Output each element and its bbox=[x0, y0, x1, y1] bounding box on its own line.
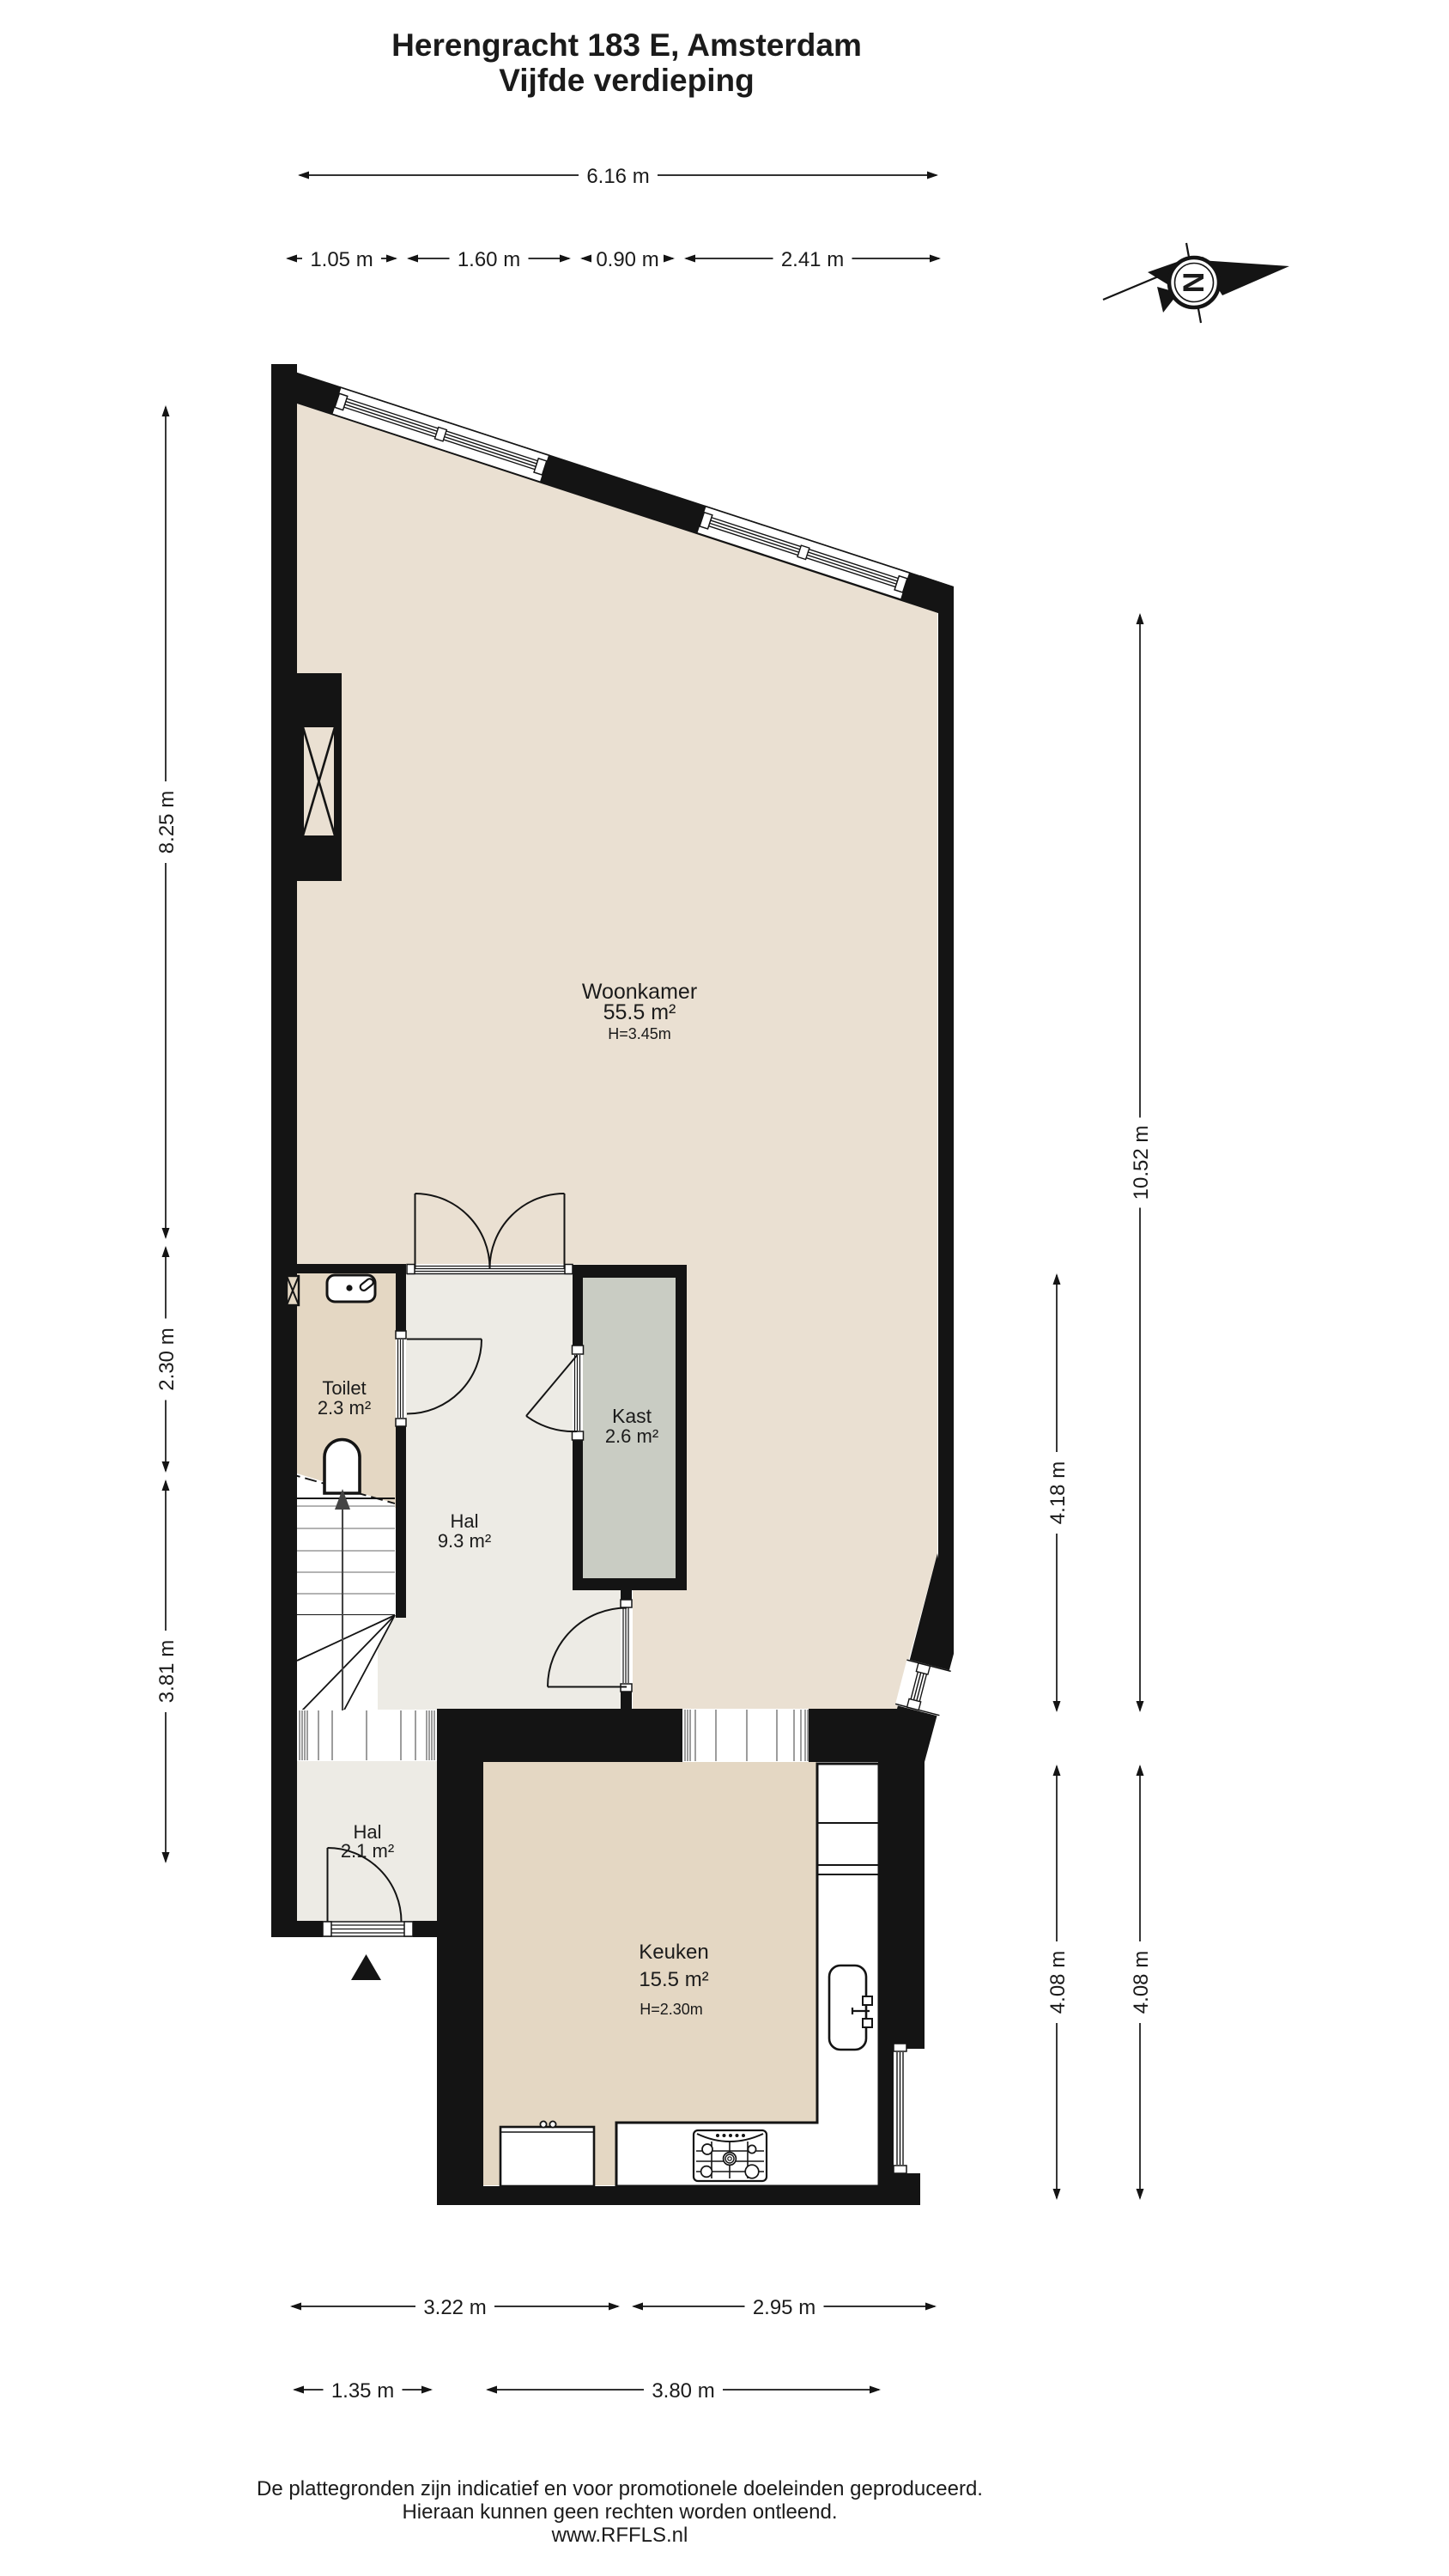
svg-text:15.5 m²: 15.5 m² bbox=[639, 1968, 708, 1991]
svg-text:9.3 m²: 9.3 m² bbox=[438, 1530, 491, 1552]
svg-text:H=3.45m: H=3.45m bbox=[608, 1025, 671, 1042]
svg-text:2.95 m: 2.95 m bbox=[753, 2296, 815, 2319]
svg-text:N: N bbox=[1177, 272, 1210, 294]
svg-text:Keuken: Keuken bbox=[639, 1941, 708, 1964]
svg-text:2.41 m: 2.41 m bbox=[781, 248, 844, 271]
svg-text:De plattegronden zijn indicati: De plattegronden zijn indicatief en voor… bbox=[257, 2477, 983, 2500]
svg-text:0.90 m: 0.90 m bbox=[596, 248, 658, 271]
svg-text:2.30 m: 2.30 m bbox=[155, 1327, 179, 1390]
svg-text:55.5 m²: 55.5 m² bbox=[603, 1000, 676, 1024]
svg-text:Hal: Hal bbox=[450, 1510, 478, 1532]
svg-text:Herengracht 183 E, Amsterdam: Herengracht 183 E, Amsterdam bbox=[391, 27, 862, 63]
svg-text:4.08 m: 4.08 m bbox=[1046, 1951, 1070, 2014]
svg-text:2.3 m²: 2.3 m² bbox=[318, 1397, 371, 1419]
svg-text:1.60 m: 1.60 m bbox=[458, 248, 520, 271]
svg-text:3.81 m: 3.81 m bbox=[155, 1640, 179, 1703]
svg-text:8.25 m: 8.25 m bbox=[155, 791, 179, 854]
svg-text:Vijfde verdieping: Vijfde verdieping bbox=[499, 63, 754, 98]
svg-text:Hieraan kunnen geen rechten wo: Hieraan kunnen geen rechten worden ontle… bbox=[402, 2500, 837, 2524]
svg-text:4.18 m: 4.18 m bbox=[1046, 1461, 1070, 1524]
svg-text:4.08 m: 4.08 m bbox=[1130, 1951, 1153, 2014]
svg-text:1.05 m: 1.05 m bbox=[310, 248, 373, 271]
svg-text:www.RFFLS.nl: www.RFFLS.nl bbox=[551, 2524, 688, 2547]
svg-text:3.22 m: 3.22 m bbox=[423, 2296, 486, 2319]
svg-text:Toilet: Toilet bbox=[322, 1377, 366, 1399]
svg-text:6.16 m: 6.16 m bbox=[586, 165, 649, 188]
svg-text:3.80 m: 3.80 m bbox=[652, 2379, 714, 2403]
svg-text:1.35 m: 1.35 m bbox=[331, 2379, 394, 2403]
svg-text:2.1 m²: 2.1 m² bbox=[341, 1840, 394, 1862]
svg-text:Kast: Kast bbox=[612, 1405, 652, 1427]
svg-text:10.52 m: 10.52 m bbox=[1130, 1126, 1153, 1200]
svg-text:2.6 m²: 2.6 m² bbox=[605, 1425, 658, 1447]
svg-text:H=2.30m: H=2.30m bbox=[640, 2001, 703, 2018]
